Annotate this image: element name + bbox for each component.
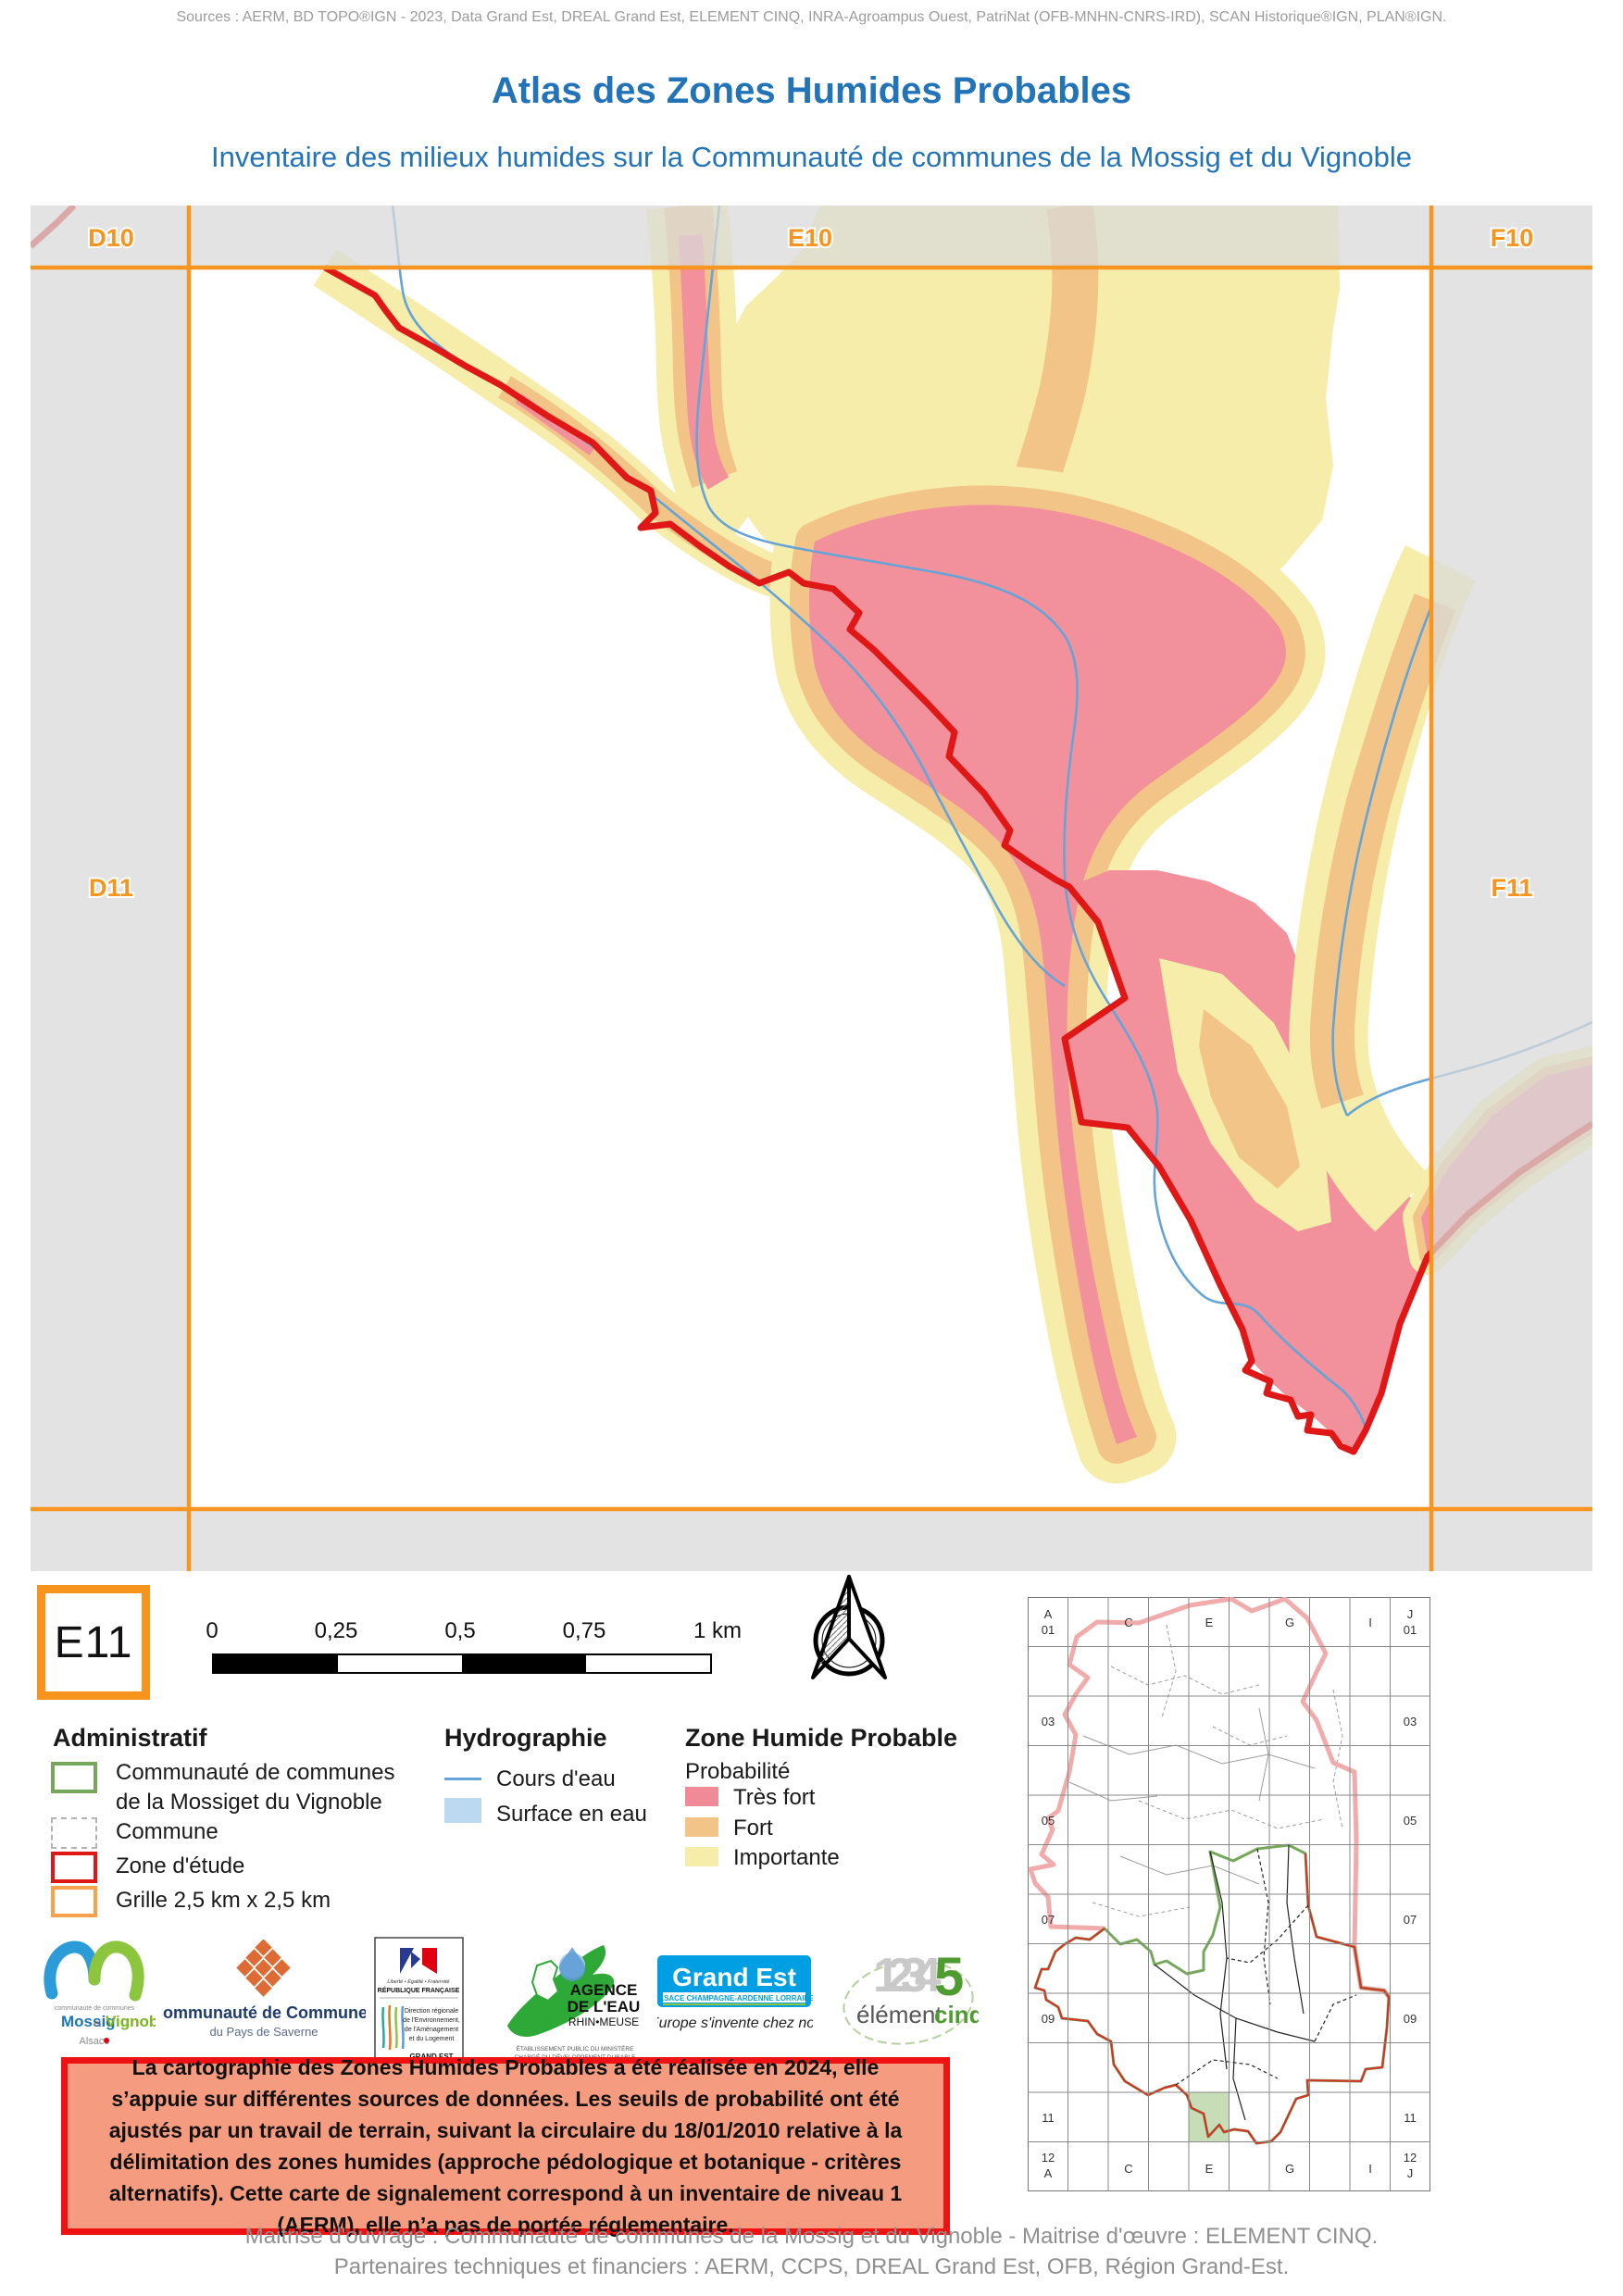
svg-text:cinq: cinq: [934, 2001, 979, 2028]
legend-admin-heading: Administratif: [53, 1724, 207, 1753]
scale-tick-05: 0,5: [444, 1618, 475, 1644]
scale-tick-0: 0: [206, 1618, 218, 1644]
grid-label-e10: E10: [788, 224, 832, 252]
svg-text:Grand Est: Grand Est: [672, 1963, 796, 1991]
scale-tick-1km: 1 km: [693, 1618, 742, 1644]
svg-text:07: 07: [1404, 1913, 1417, 1927]
logo-agence-eau: AGENCE DE L'EAU RHIN•MEUSE ÉTABLISSEMENT…: [500, 1938, 650, 2067]
svg-text:DE L'EAU: DE L'EAU: [568, 1998, 641, 2015]
scale-tick-025: 0,25: [315, 1618, 358, 1644]
logo-dreal: Liberté • Égalité • Fraternité RÉPUBLIQU…: [374, 1937, 464, 2069]
footer-line-1: Maitrise d'ouvrage : Communauté de commu…: [0, 2224, 1623, 2250]
cc-label-line2: de la Mossiget du Vignoble: [116, 1790, 382, 1816]
main-map: D10 E10 F10 D11 F11: [31, 206, 1592, 1571]
svg-text:Communauté de Communes: Communauté de Communes: [162, 2003, 366, 2022]
surface-eau-label: Surface en eau: [496, 1802, 647, 1828]
commune-label: Commune: [116, 1819, 218, 1845]
svg-text:12: 12: [1404, 2151, 1417, 2165]
svg-text:J: J: [1407, 1607, 1414, 1621]
svg-text:A: A: [1044, 1607, 1053, 1621]
svg-text:ALSACE CHAMPAGNE-ARDENNE LORRA: ALSACE CHAMPAGNE-ARDENNE LORRAINE: [657, 1994, 813, 2003]
zone-etude-swatch: [51, 1852, 97, 1883]
svg-text:A: A: [1044, 2166, 1053, 2180]
svg-text:de l'Aménagement: de l'Aménagement: [405, 2027, 458, 2033]
svg-text:11: 11: [1404, 2111, 1417, 2125]
fort-label: Fort: [733, 1816, 773, 1841]
zone-etude-label: Zone d'étude: [116, 1853, 244, 1879]
grille-label: Grille 2,5 km x 2,5 km: [116, 1888, 331, 1914]
svg-text:03: 03: [1404, 1715, 1417, 1728]
legend-zhp-heading: Zone Humide Probable: [685, 1724, 957, 1753]
commune-swatch: [51, 1817, 97, 1849]
cours-eau-swatch: [444, 1778, 481, 1780]
svg-text:de l'Environnement,: de l'Environnement,: [403, 2017, 460, 2024]
svg-text:J: J: [1407, 2166, 1414, 2180]
warning-text: La cartographie des Zones Humides Probab…: [89, 2052, 922, 2240]
svg-text:Vignoble: Vignoble: [106, 2013, 156, 2030]
svg-text:07: 07: [1042, 1913, 1055, 1927]
surface-eau-swatch: [444, 1798, 481, 1823]
tres-fort-label: Très fort: [733, 1785, 815, 1811]
sources-line: Sources : AERM, BD TOPO®IGN - 2023, Data…: [0, 9, 1623, 26]
svg-text:09: 09: [1042, 2012, 1055, 2026]
svg-text:communauté de communes: communauté de communes: [55, 2005, 135, 2012]
overview-map: A 01 C E G I J 01 03 05 07 09 11 03 05 0…: [1028, 1597, 1430, 2191]
tres-fort-swatch: [685, 1787, 718, 1806]
svg-text:C: C: [1124, 1616, 1132, 1629]
alsace-dot: [104, 2038, 109, 2043]
svg-text:Direction régionale: Direction régionale: [405, 2008, 458, 2015]
svg-text:Liberté • Égalité • Fraternité: Liberté • Égalité • Fraternité: [387, 1978, 449, 1985]
footer-line-2: Partenaires techniques et financiers : A…: [0, 2254, 1623, 2280]
svg-text:RÉPUBLIQUE FRANÇAISE: RÉPUBLIQUE FRANÇAISE: [378, 1986, 460, 1994]
page-title: Atlas des Zones Humides Probables: [0, 70, 1623, 112]
svg-text:05: 05: [1404, 1814, 1417, 1828]
scale-tick-075: 0,75: [563, 1618, 606, 1644]
svg-text:du Pays de Saverne: du Pays de Saverne: [209, 2025, 318, 2039]
legend-zhp-subheading: Probabilité: [685, 1759, 790, 1785]
cc-swatch: [51, 1762, 97, 1793]
svg-text:1234: 1234: [873, 1949, 942, 2003]
legend-hydro-heading: Hydrographie: [444, 1724, 607, 1753]
svg-text:09: 09: [1404, 2012, 1417, 2026]
grid-label-d11: D11: [89, 874, 133, 902]
fort-swatch: [685, 1817, 718, 1837]
svg-text:et du Logement: et du Logement: [409, 2036, 455, 2042]
logo-pays-de-saverne: Communauté de Communes du Pays de Savern…: [162, 1940, 366, 2051]
tile-reference-box: E11: [37, 1585, 150, 1700]
svg-text:AGENCE: AGENCE: [570, 1981, 638, 1999]
cc-label-line1: Communauté de communes: [116, 1760, 394, 1786]
logo-element-cinq: 1234 5 élément cinq: [838, 1940, 979, 2049]
france-map-icon: [532, 1961, 558, 2001]
scale-bar-graphic: [212, 1653, 712, 1674]
svg-text:L'Europe s'invente chez nous: L'Europe s'invente chez nous: [657, 2015, 813, 2031]
grid-label-f10: F10: [1491, 224, 1534, 252]
warning-box: La cartographie des Zones Humides Probab…: [61, 2057, 950, 2235]
svg-text:05: 05: [1042, 1814, 1055, 1828]
svg-text:12: 12: [1042, 2151, 1055, 2165]
saverne-diamond-icon: [236, 1940, 290, 1997]
svg-text:01: 01: [1404, 1623, 1417, 1637]
svg-text:et: et: [94, 2019, 102, 2029]
svg-text:G: G: [1285, 1616, 1294, 1629]
svg-text:01: 01: [1042, 1623, 1055, 1637]
svg-text:E: E: [1205, 2162, 1214, 2176]
svg-text:C: C: [1124, 2162, 1132, 2176]
svg-text:5: 5: [934, 1947, 964, 2007]
scale-bar: 0 0,25 0,5 0,75 1 km: [212, 1618, 786, 1683]
svg-text:I: I: [1368, 2162, 1372, 2176]
svg-text:E: E: [1205, 1616, 1214, 1629]
svg-text:G: G: [1285, 2162, 1294, 2176]
grid-label-d10: D10: [88, 224, 134, 252]
main-map-canvas: D10 E10 F10 D11 F11: [31, 206, 1592, 1571]
north-arrow-icon: [804, 1569, 896, 1694]
grid-label-f11: F11: [1491, 874, 1532, 902]
svg-text:03: 03: [1042, 1715, 1055, 1728]
logo-grand-est: Grand Est ALSACE CHAMPAGNE-ARDENNE LORRA…: [657, 1955, 813, 2048]
page-subtitle: Inventaire des milieux humides sur la Co…: [0, 141, 1623, 174]
svg-text:élément: élément: [856, 2001, 943, 2028]
svg-text:11: 11: [1042, 2111, 1055, 2125]
svg-text:RHIN•MEUSE: RHIN•MEUSE: [568, 2015, 639, 2028]
importante-label: Importante: [733, 1845, 840, 1871]
importante-swatch: [685, 1847, 718, 1866]
cours-eau-label: Cours d'eau: [496, 1766, 616, 1792]
svg-text:I: I: [1368, 1616, 1372, 1629]
logo-mossig-vignoble: communauté de communes Mossig et Vignobl…: [33, 1938, 156, 2053]
grille-swatch: [51, 1886, 97, 1917]
